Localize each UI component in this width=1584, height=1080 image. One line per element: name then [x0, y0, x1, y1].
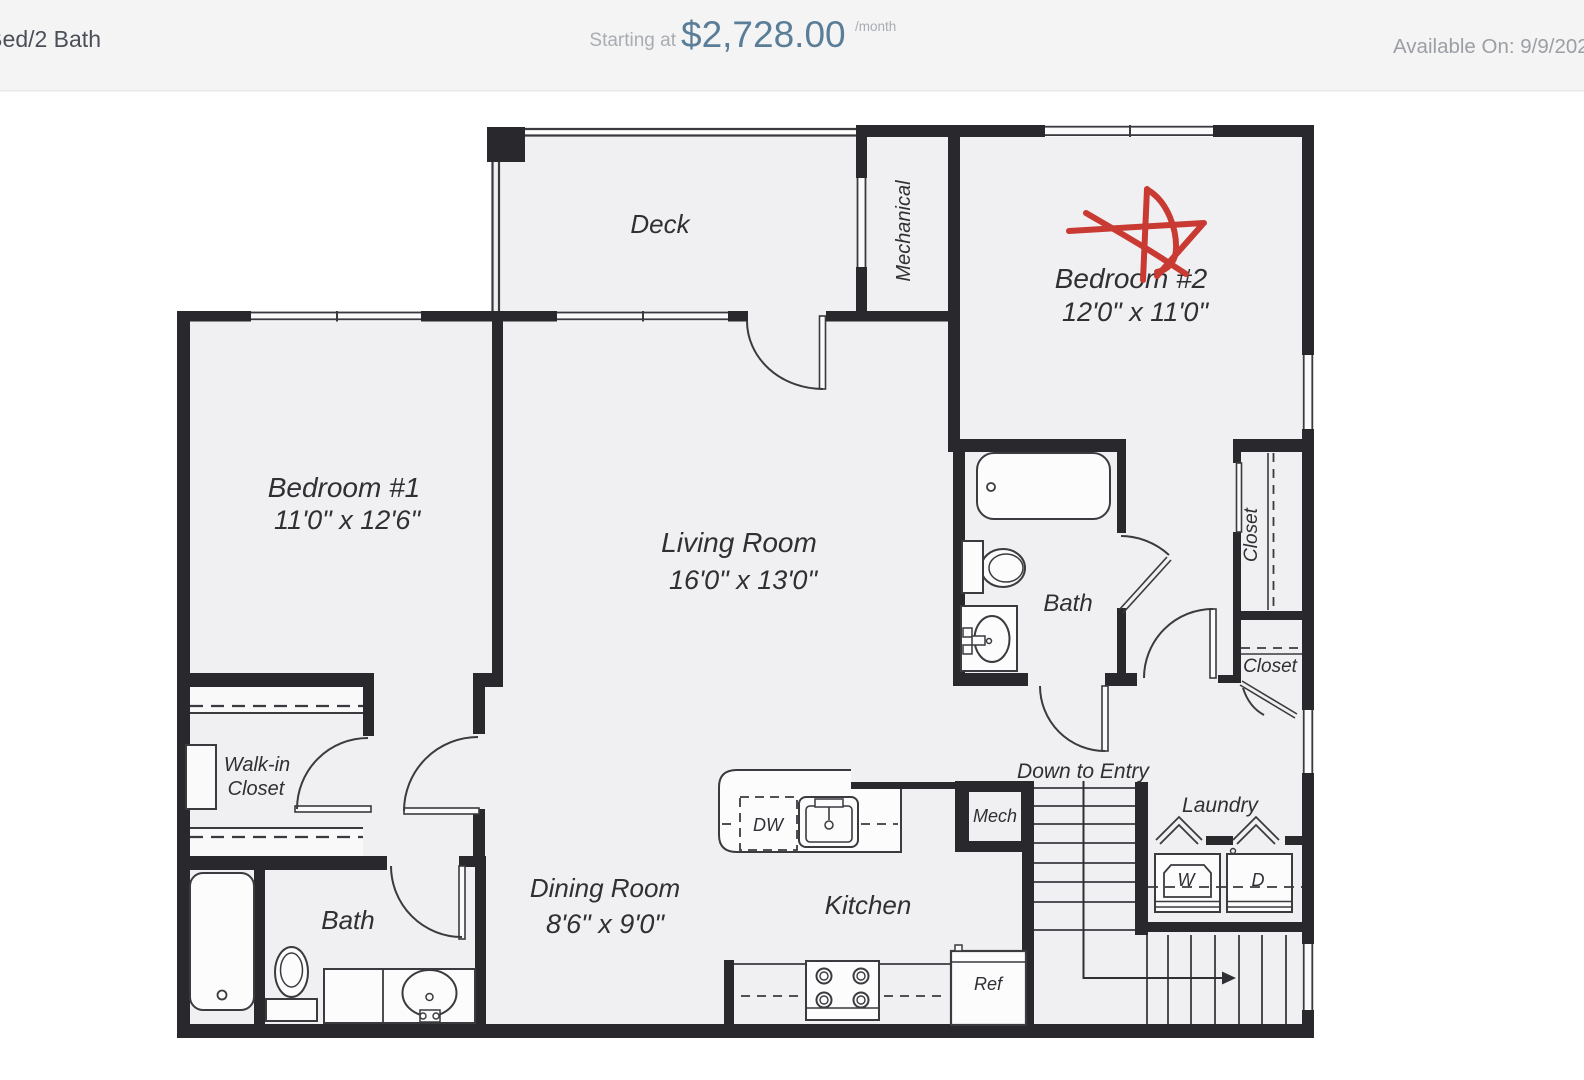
svg-text:Closet: Closet: [228, 778, 286, 800]
svg-text:Ref: Ref: [974, 974, 1004, 994]
svg-text:Bedroom #1: Bedroom #1: [268, 472, 421, 503]
svg-text:D: D: [1252, 870, 1265, 890]
svg-text:Bath: Bath: [321, 905, 375, 935]
svg-text:2 Bed/2 Bath: 2 Bed/2 Bath: [0, 26, 101, 52]
svg-text:Deck: Deck: [630, 209, 691, 239]
svg-text:Laundry: Laundry: [1182, 794, 1259, 817]
svg-text:Kitchen: Kitchen: [825, 890, 912, 920]
svg-text:16'0" x 13'0": 16'0" x 13'0": [669, 565, 818, 595]
svg-text:Starting at: Starting at: [589, 30, 676, 51]
svg-text:Walk-in: Walk-in: [224, 754, 290, 776]
svg-text:Mech: Mech: [973, 806, 1017, 826]
svg-text:Bath: Bath: [1043, 590, 1092, 617]
svg-text:W: W: [1178, 870, 1197, 890]
svg-text:11'0" x 12'6": 11'0" x 12'6": [274, 505, 421, 535]
svg-text:Mechanical: Mechanical: [893, 180, 915, 282]
svg-text:Available On: 9/9/2024: Available On: 9/9/2024: [1393, 35, 1584, 58]
svg-text:Closet: Closet: [1241, 507, 1262, 562]
svg-text:Down to Entry: Down to Entry: [1017, 760, 1150, 783]
svg-text:12'0" x 11'0": 12'0" x 11'0": [1062, 297, 1209, 327]
svg-text:Bedroom #2: Bedroom #2: [1055, 263, 1208, 294]
svg-text:8'6" x 9'0": 8'6" x 9'0": [546, 909, 665, 939]
svg-text:Living Room: Living Room: [661, 527, 817, 558]
svg-text:/month: /month: [855, 19, 896, 34]
svg-text:$2,728.00: $2,728.00: [681, 14, 846, 55]
svg-text:Closet: Closet: [1243, 656, 1298, 677]
svg-text:Dining Room: Dining Room: [530, 873, 680, 903]
svg-text:DW: DW: [753, 815, 785, 835]
